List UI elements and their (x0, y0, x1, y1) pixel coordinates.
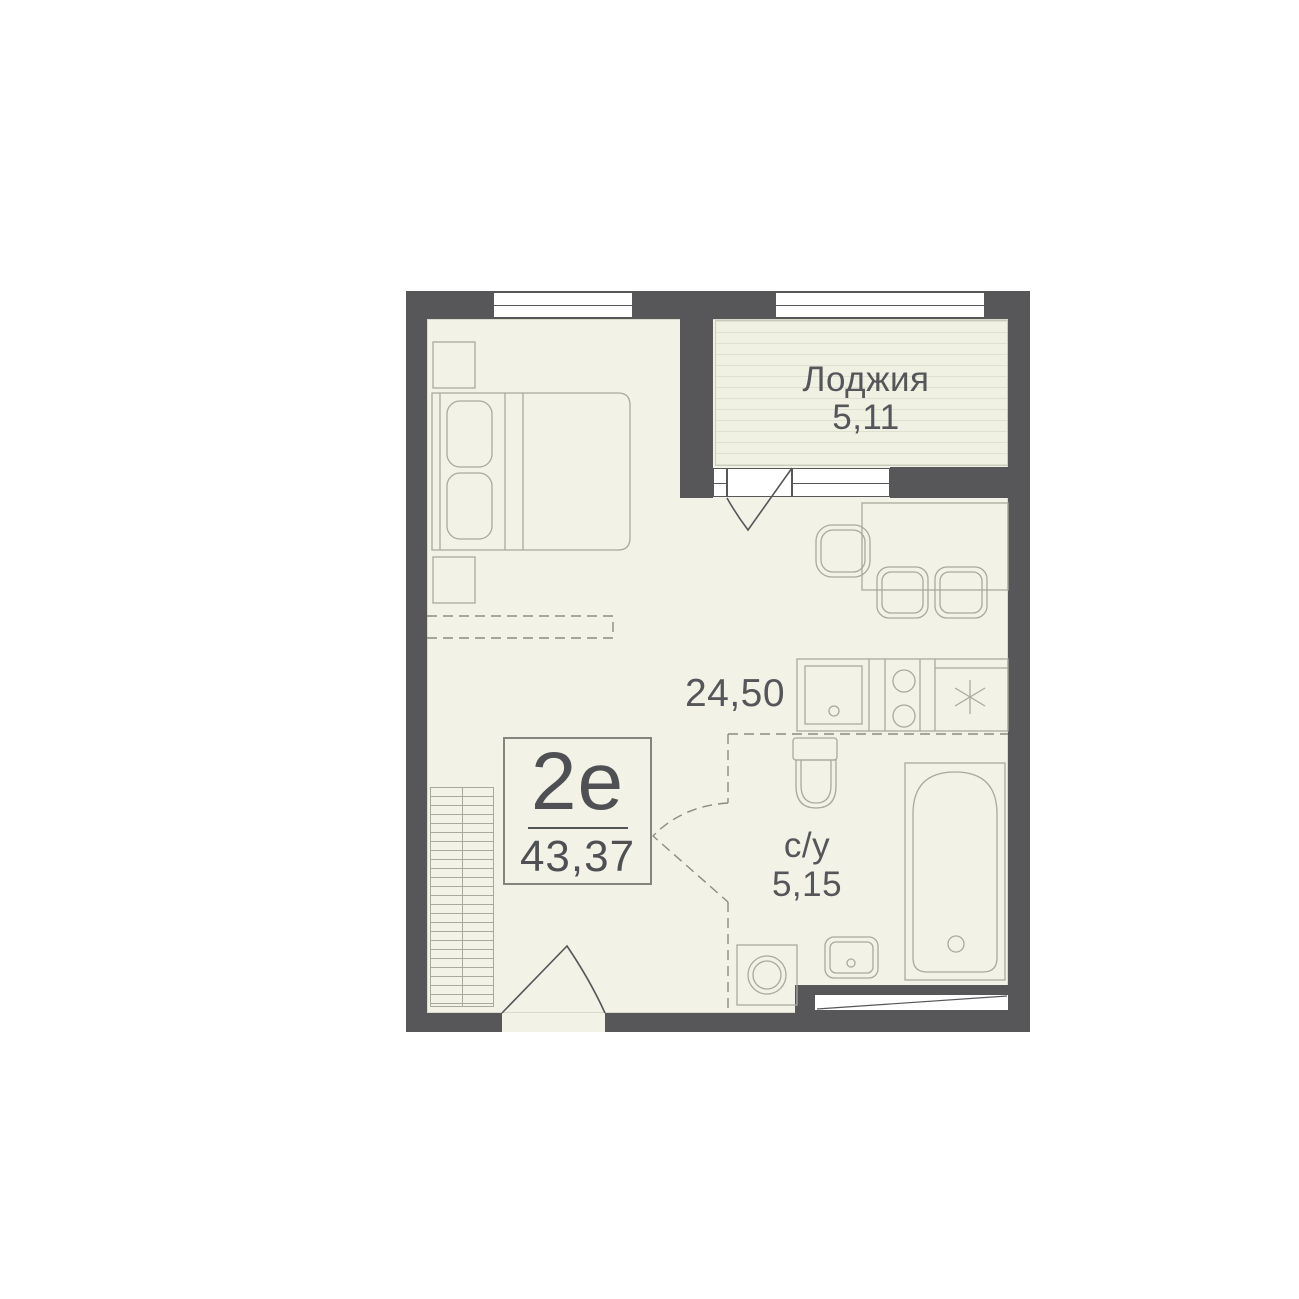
wardrobe-divider (462, 788, 463, 1006)
window-frame-line (493, 305, 633, 306)
window-frame-line (792, 483, 890, 484)
balcony-side-pane (713, 468, 727, 497)
loggia-area-label: 5,11 (832, 398, 900, 438)
floor-plan: Лоджия 5,11 24,50 с/у 5,15 2е 43,37 (0, 0, 1299, 1299)
vent-shaft-opening (815, 995, 1008, 1010)
living-area-label: 24,50 (685, 672, 785, 716)
unit-divider-line (528, 827, 628, 829)
wardrobe (430, 787, 494, 1007)
unit-info-box: 2е 43,37 (503, 737, 652, 885)
bedroom-window (493, 292, 633, 318)
bathroom-name-label: с/у (784, 826, 830, 866)
entrance-threshold (502, 1013, 605, 1032)
loggia-name-label: Лоджия (802, 360, 929, 400)
balcony-door (727, 468, 792, 497)
unit-type-label: 2е (531, 743, 624, 821)
wall-loggia-partition (680, 319, 713, 498)
loggia-window (775, 292, 985, 318)
window-frame-line (775, 305, 985, 306)
wall-bottom-left (406, 1013, 502, 1032)
wall-under-loggia (890, 467, 1008, 498)
bathroom-area-label: 5,15 (772, 865, 842, 905)
window-frame-line (713, 483, 727, 484)
wall-right (1008, 291, 1030, 1032)
wall-bottom-right (605, 1013, 1030, 1032)
balcony-inner-window (792, 468, 890, 497)
unit-total-area-label: 43,37 (520, 835, 635, 879)
wall-left (406, 291, 427, 1032)
